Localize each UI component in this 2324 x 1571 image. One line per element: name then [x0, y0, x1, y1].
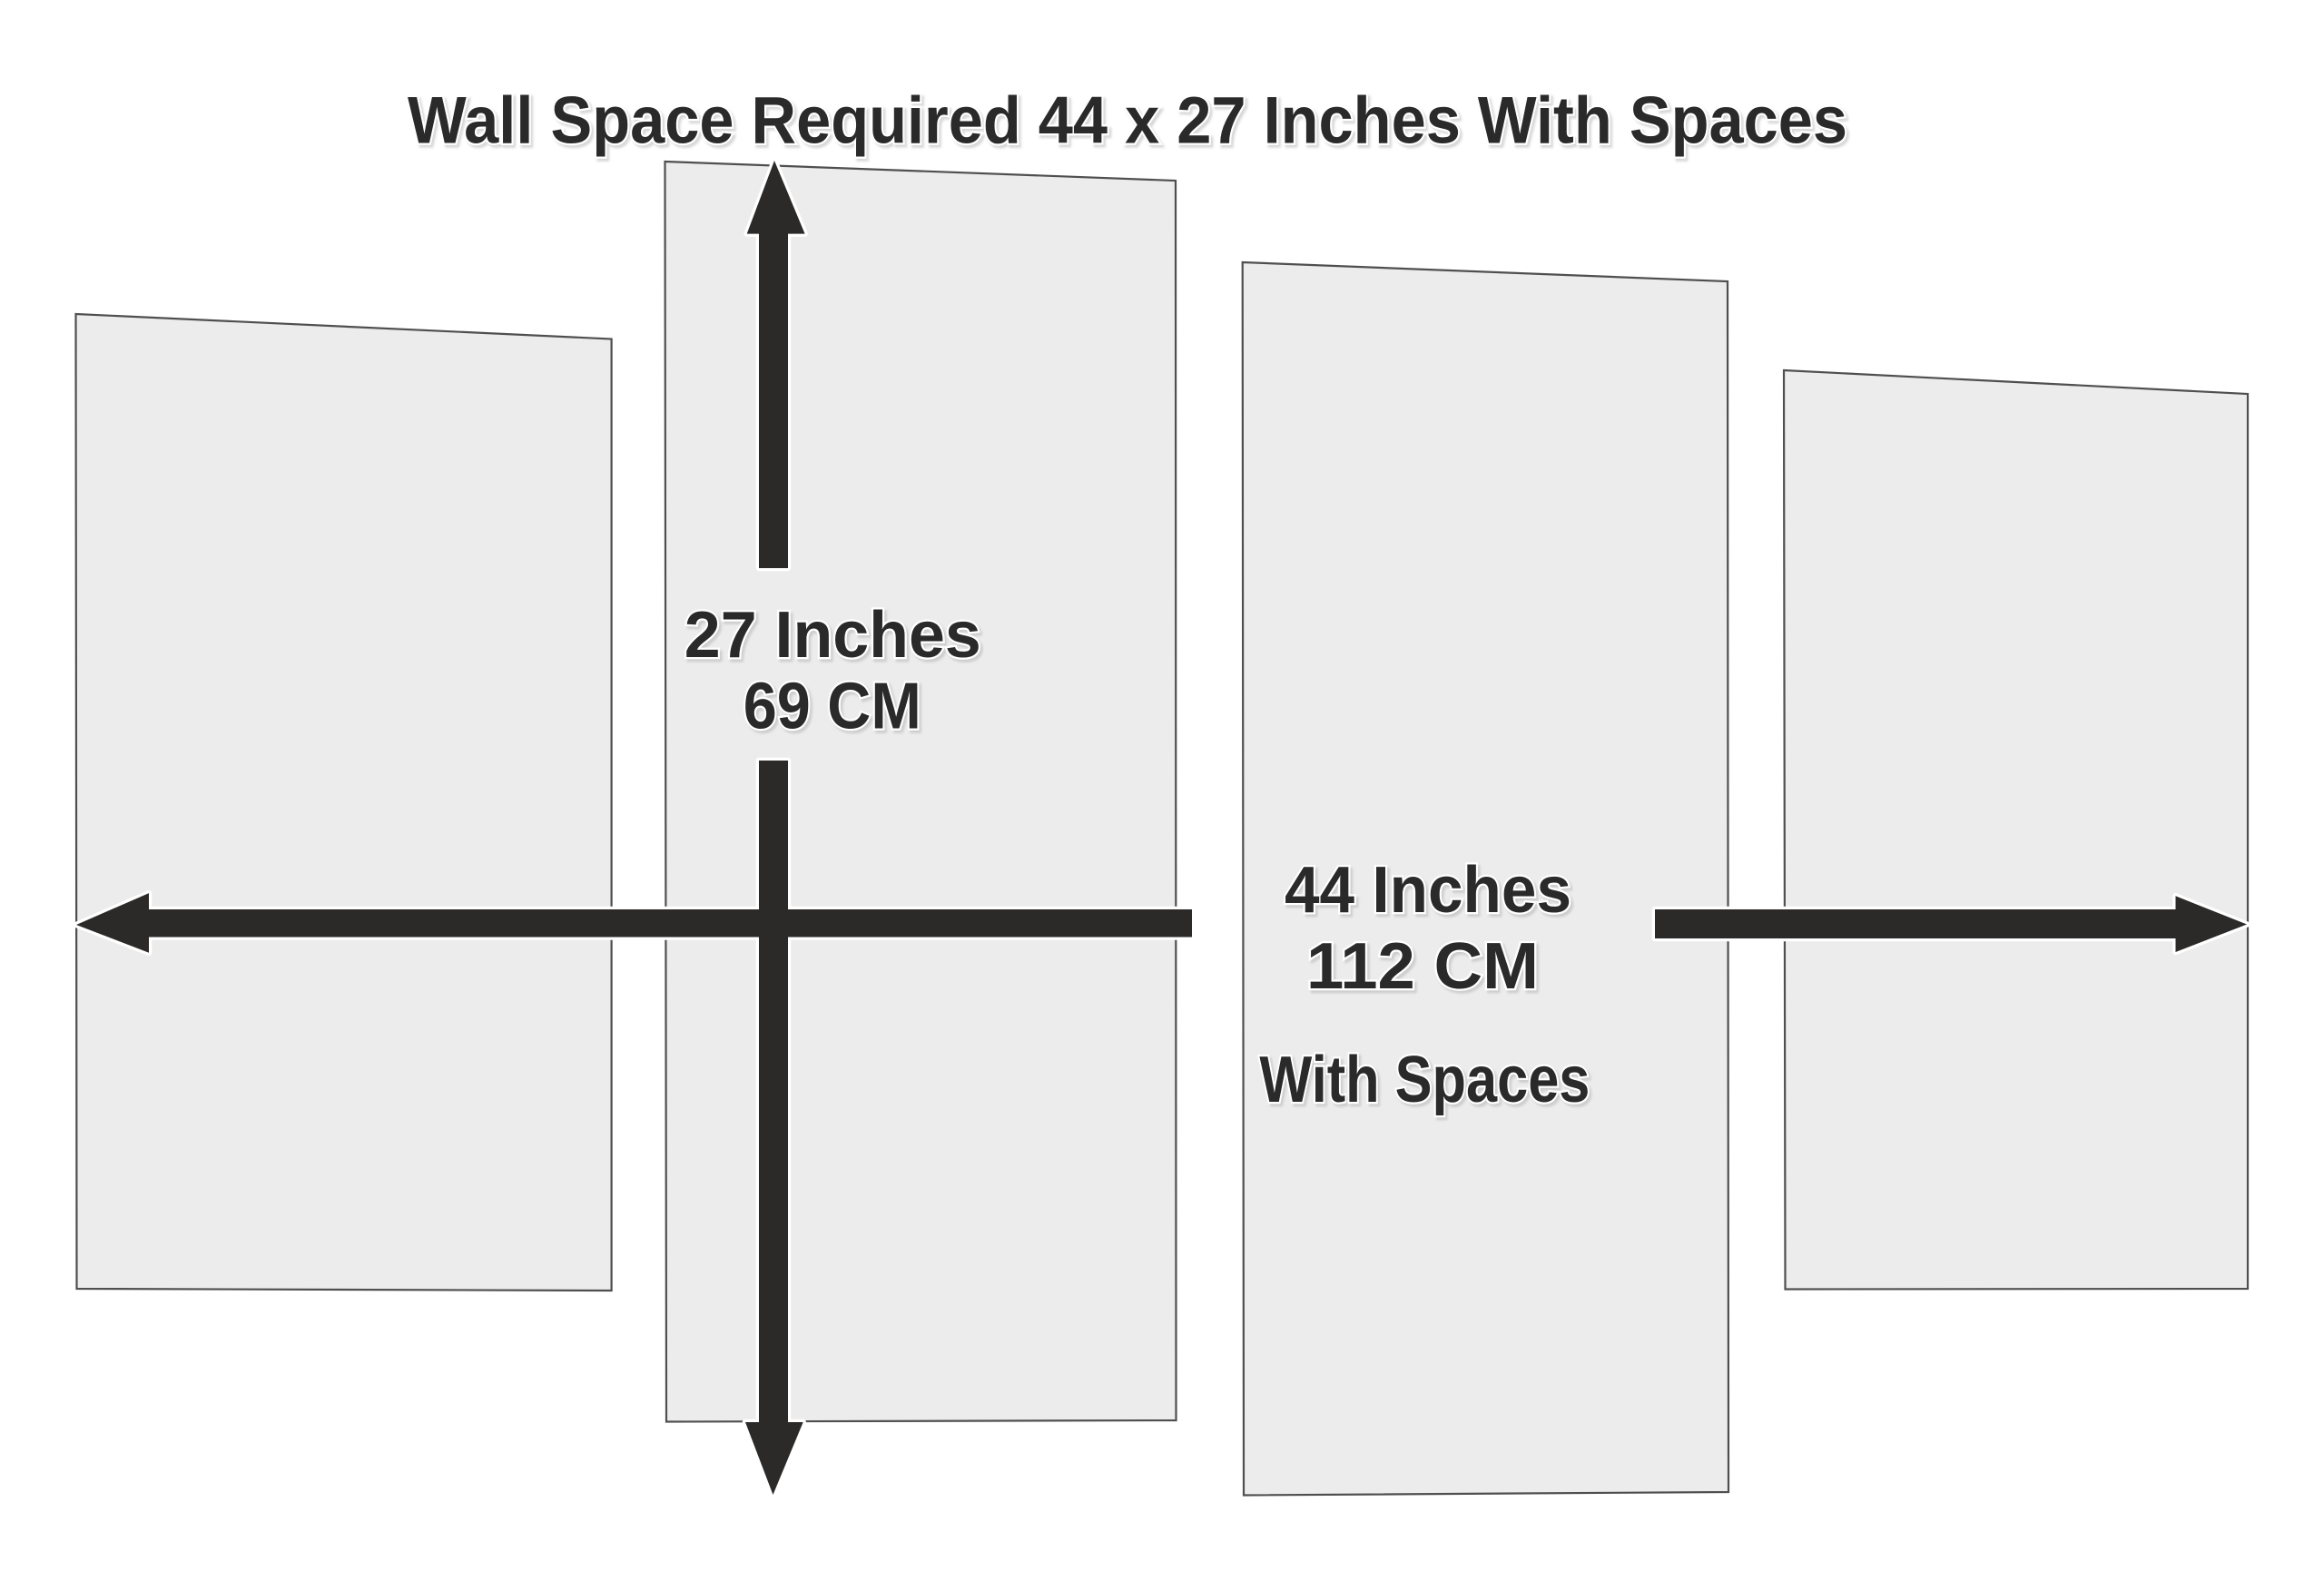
svg-text:112 CM: 112 CM: [1306, 930, 1539, 1003]
svg-text:27 Inches: 27 Inches: [684, 599, 981, 672]
svg-text:44 Inches: 44 Inches: [1285, 854, 1571, 927]
svg-text:With Spaces: With Spaces: [1259, 1044, 1590, 1116]
svg-text:69 CM: 69 CM: [743, 670, 921, 742]
svg-text:Wall Space Required 44 x 27 In: Wall Space Required 44 x 27 Inches With …: [408, 84, 1847, 158]
